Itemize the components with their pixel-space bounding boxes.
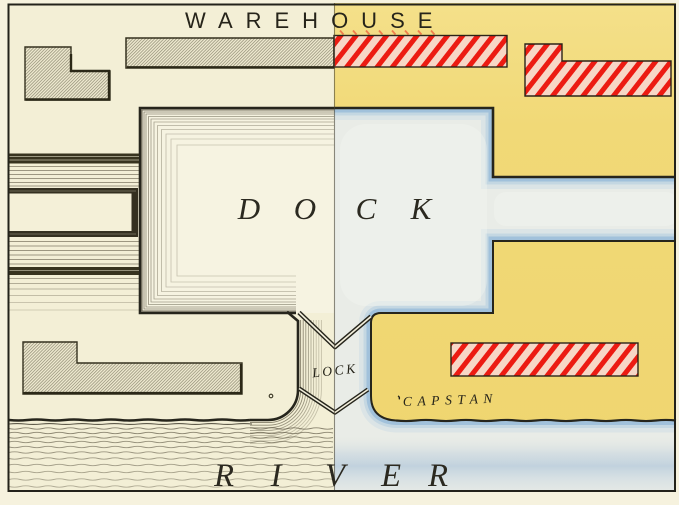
svg-text:K: K [410,191,434,226]
svg-text:V: V [325,458,348,494]
svg-text:R: R [213,458,234,494]
svg-text:WAREHOUSE: WAREHOUSE [185,8,445,33]
svg-text:E: E [380,458,401,494]
svg-text:R: R [427,458,448,494]
svg-text:O: O [294,191,316,226]
svg-text:D: D [237,191,260,226]
svg-text:C: C [356,191,377,226]
